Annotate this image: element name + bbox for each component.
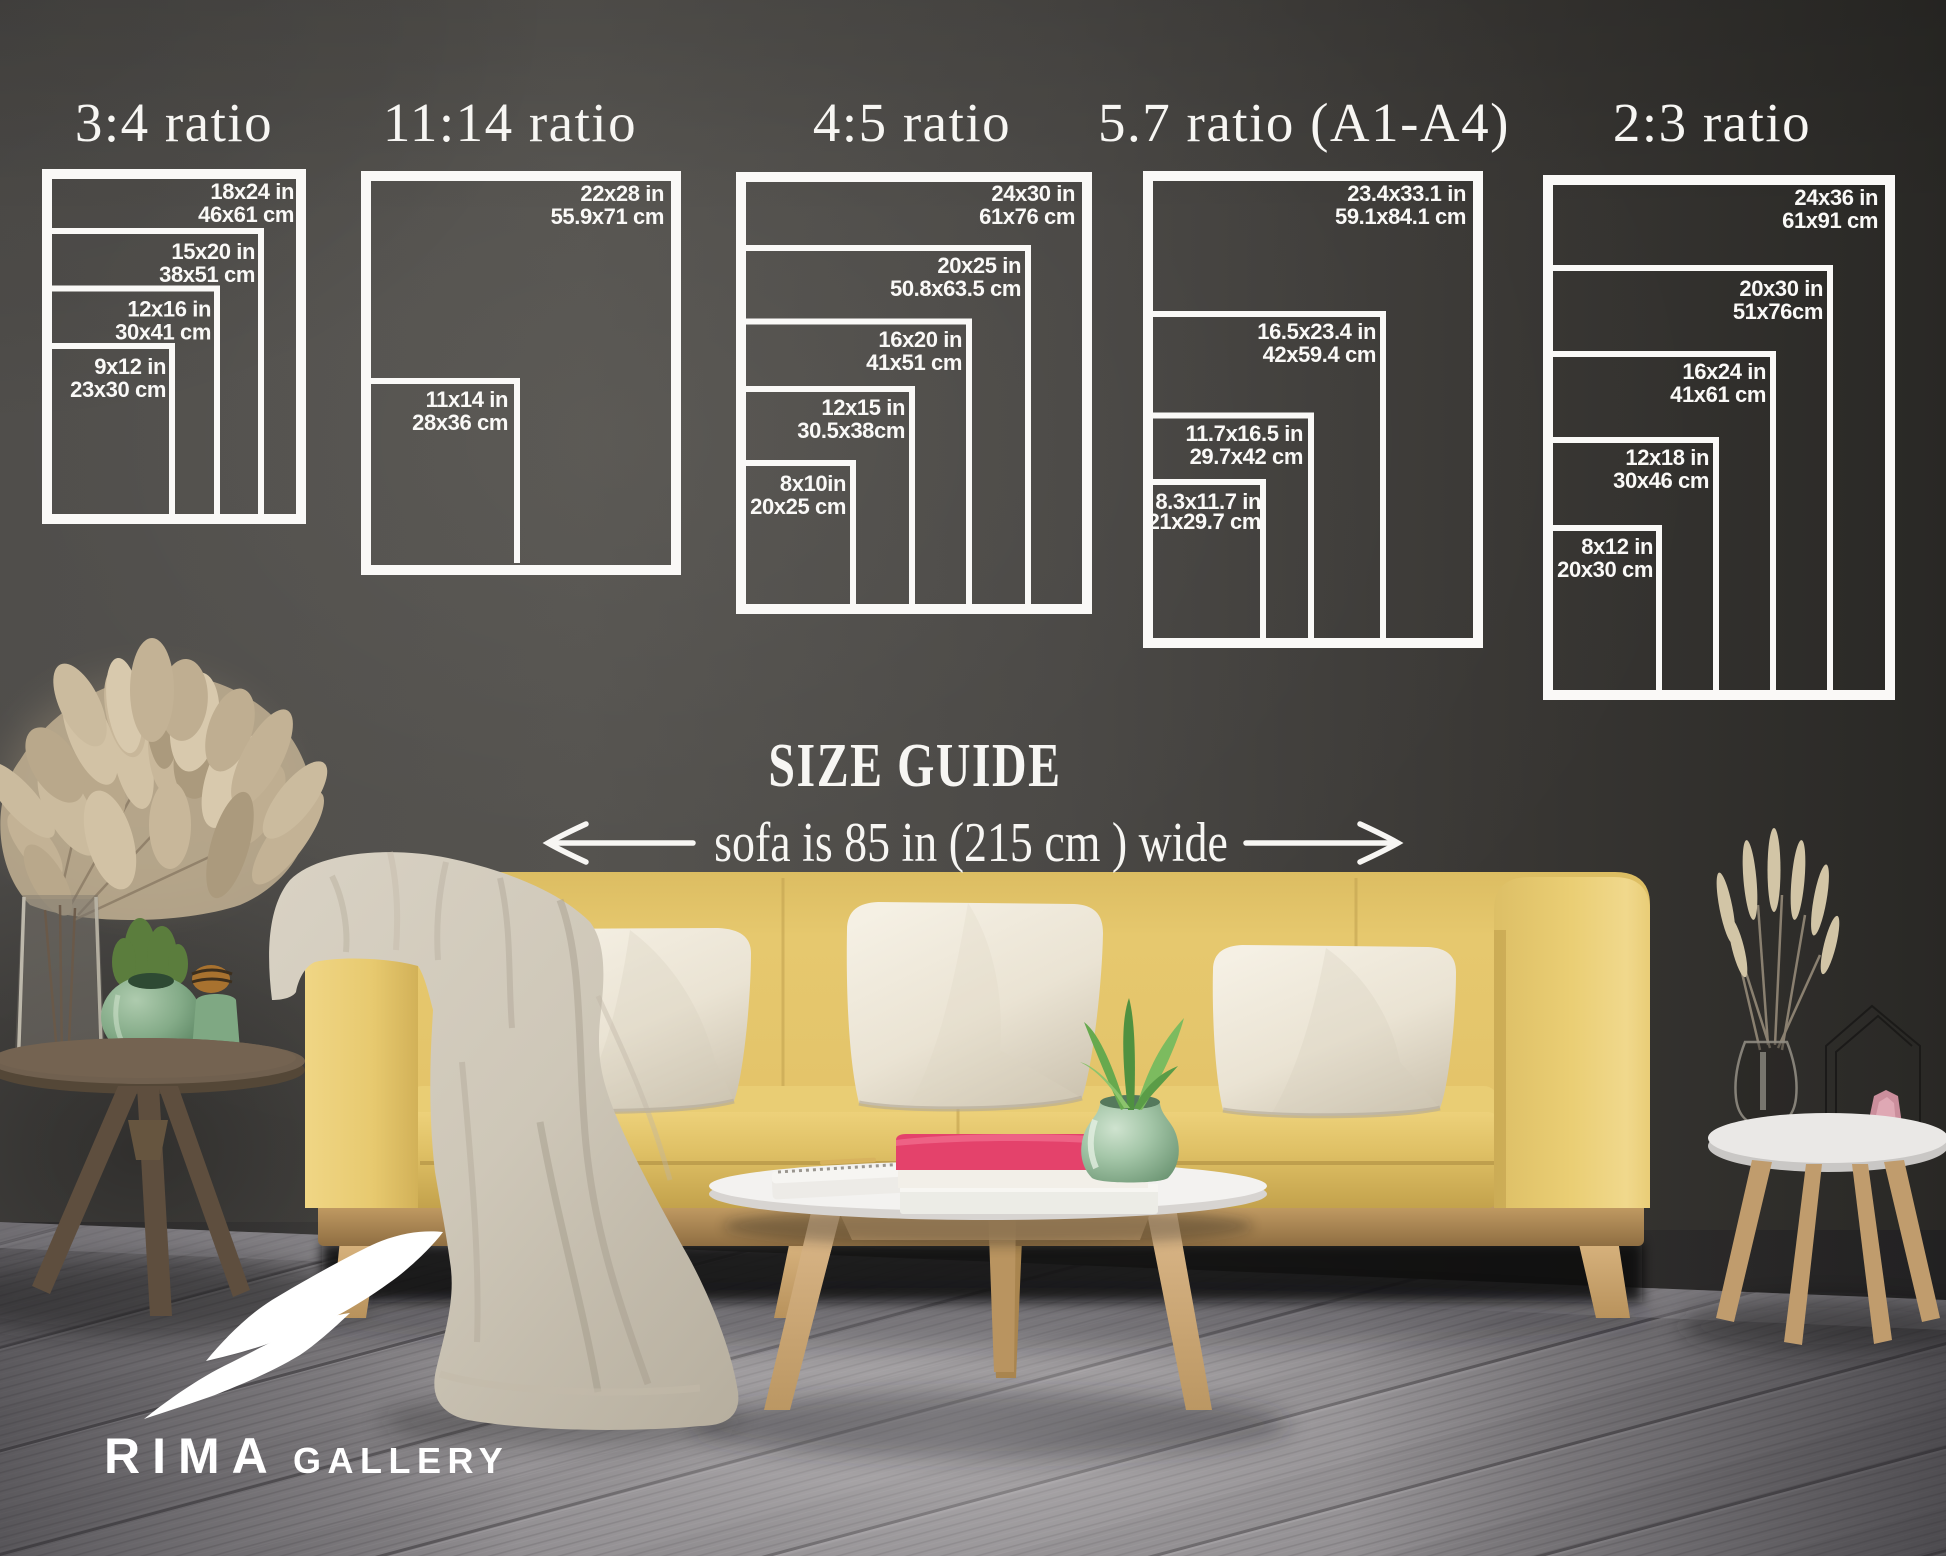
svg-text:41x51 cm: 41x51 cm: [866, 350, 962, 375]
svg-text:20x25 cm: 20x25 cm: [750, 494, 846, 519]
svg-text:8x12 in: 8x12 in: [1581, 534, 1653, 559]
svg-text:22x28 in: 22x28 in: [580, 181, 664, 206]
svg-text:29.7x42 cm: 29.7x42 cm: [1190, 444, 1303, 469]
svg-text:8x10in: 8x10in: [780, 471, 846, 496]
svg-text:5.7 ratio (A1-A4): 5.7 ratio (A1-A4): [1098, 92, 1510, 153]
svg-text:11.7x16.5 in: 11.7x16.5 in: [1185, 421, 1303, 446]
svg-text:51x76cm: 51x76cm: [1733, 299, 1823, 324]
svg-text:20x25 in: 20x25 in: [937, 253, 1021, 278]
svg-text:42x59.4 cm: 42x59.4 cm: [1263, 342, 1376, 367]
svg-text:46x61 cm: 46x61 cm: [198, 202, 294, 227]
svg-text:59.1x84.1 cm: 59.1x84.1 cm: [1335, 204, 1466, 229]
svg-text:24x30 in: 24x30 in: [991, 181, 1075, 206]
svg-text:12x15 in: 12x15 in: [821, 395, 905, 420]
svg-text:RIMA: RIMA: [104, 1428, 280, 1484]
svg-text:sofa is 85 in (215 cm ) wide: sofa is 85 in (215 cm ) wide: [714, 812, 1228, 874]
svg-text:38x51 cm: 38x51 cm: [159, 262, 255, 287]
svg-text:55.9x71 cm: 55.9x71 cm: [551, 204, 664, 229]
svg-text:16.5x23.4 in: 16.5x23.4 in: [1257, 319, 1376, 344]
svg-text:11x14 in: 11x14 in: [426, 387, 508, 412]
svg-text:30x46 cm: 30x46 cm: [1613, 468, 1709, 493]
svg-text:SIZE GUIDE: SIZE GUIDE: [768, 731, 1061, 801]
svg-text:28x36 cm: 28x36 cm: [412, 410, 508, 435]
svg-text:20x30 cm: 20x30 cm: [1557, 557, 1653, 582]
svg-text:16x20 in: 16x20 in: [878, 327, 962, 352]
svg-text:12x16 in: 12x16 in: [127, 297, 211, 322]
svg-text:4:5 ratio: 4:5 ratio: [813, 92, 1011, 153]
svg-text:23x30 cm: 23x30 cm: [70, 377, 166, 402]
svg-text:20x30 in: 20x30 in: [1739, 276, 1823, 301]
svg-text:12x18 in: 12x18 in: [1625, 445, 1709, 470]
svg-text:61x91 cm: 61x91 cm: [1782, 208, 1878, 233]
svg-text:GALLERY: GALLERY: [293, 1440, 509, 1481]
svg-text:11:14 ratio: 11:14 ratio: [383, 92, 637, 153]
svg-text:18x24 in: 18x24 in: [210, 179, 294, 204]
svg-text:16x24 in: 16x24 in: [1682, 359, 1766, 384]
svg-text:30.5x38cm: 30.5x38cm: [797, 418, 905, 443]
svg-text:15x20 in: 15x20 in: [171, 239, 255, 264]
svg-text:21x29.7 cm: 21x29.7 cm: [1148, 509, 1261, 534]
svg-text:41x61 cm: 41x61 cm: [1670, 382, 1766, 407]
svg-text:24x36 in: 24x36 in: [1794, 185, 1878, 210]
svg-text:23.4x33.1 in: 23.4x33.1 in: [1347, 181, 1466, 206]
svg-text:3:4 ratio: 3:4 ratio: [75, 92, 273, 153]
svg-text:61x76 cm: 61x76 cm: [979, 204, 1075, 229]
svg-text:9x12 in: 9x12 in: [94, 354, 166, 379]
svg-text:30x41 cm: 30x41 cm: [115, 320, 211, 345]
svg-text:2:3 ratio: 2:3 ratio: [1613, 92, 1811, 153]
svg-text:50.8x63.5 cm: 50.8x63.5 cm: [890, 276, 1021, 301]
